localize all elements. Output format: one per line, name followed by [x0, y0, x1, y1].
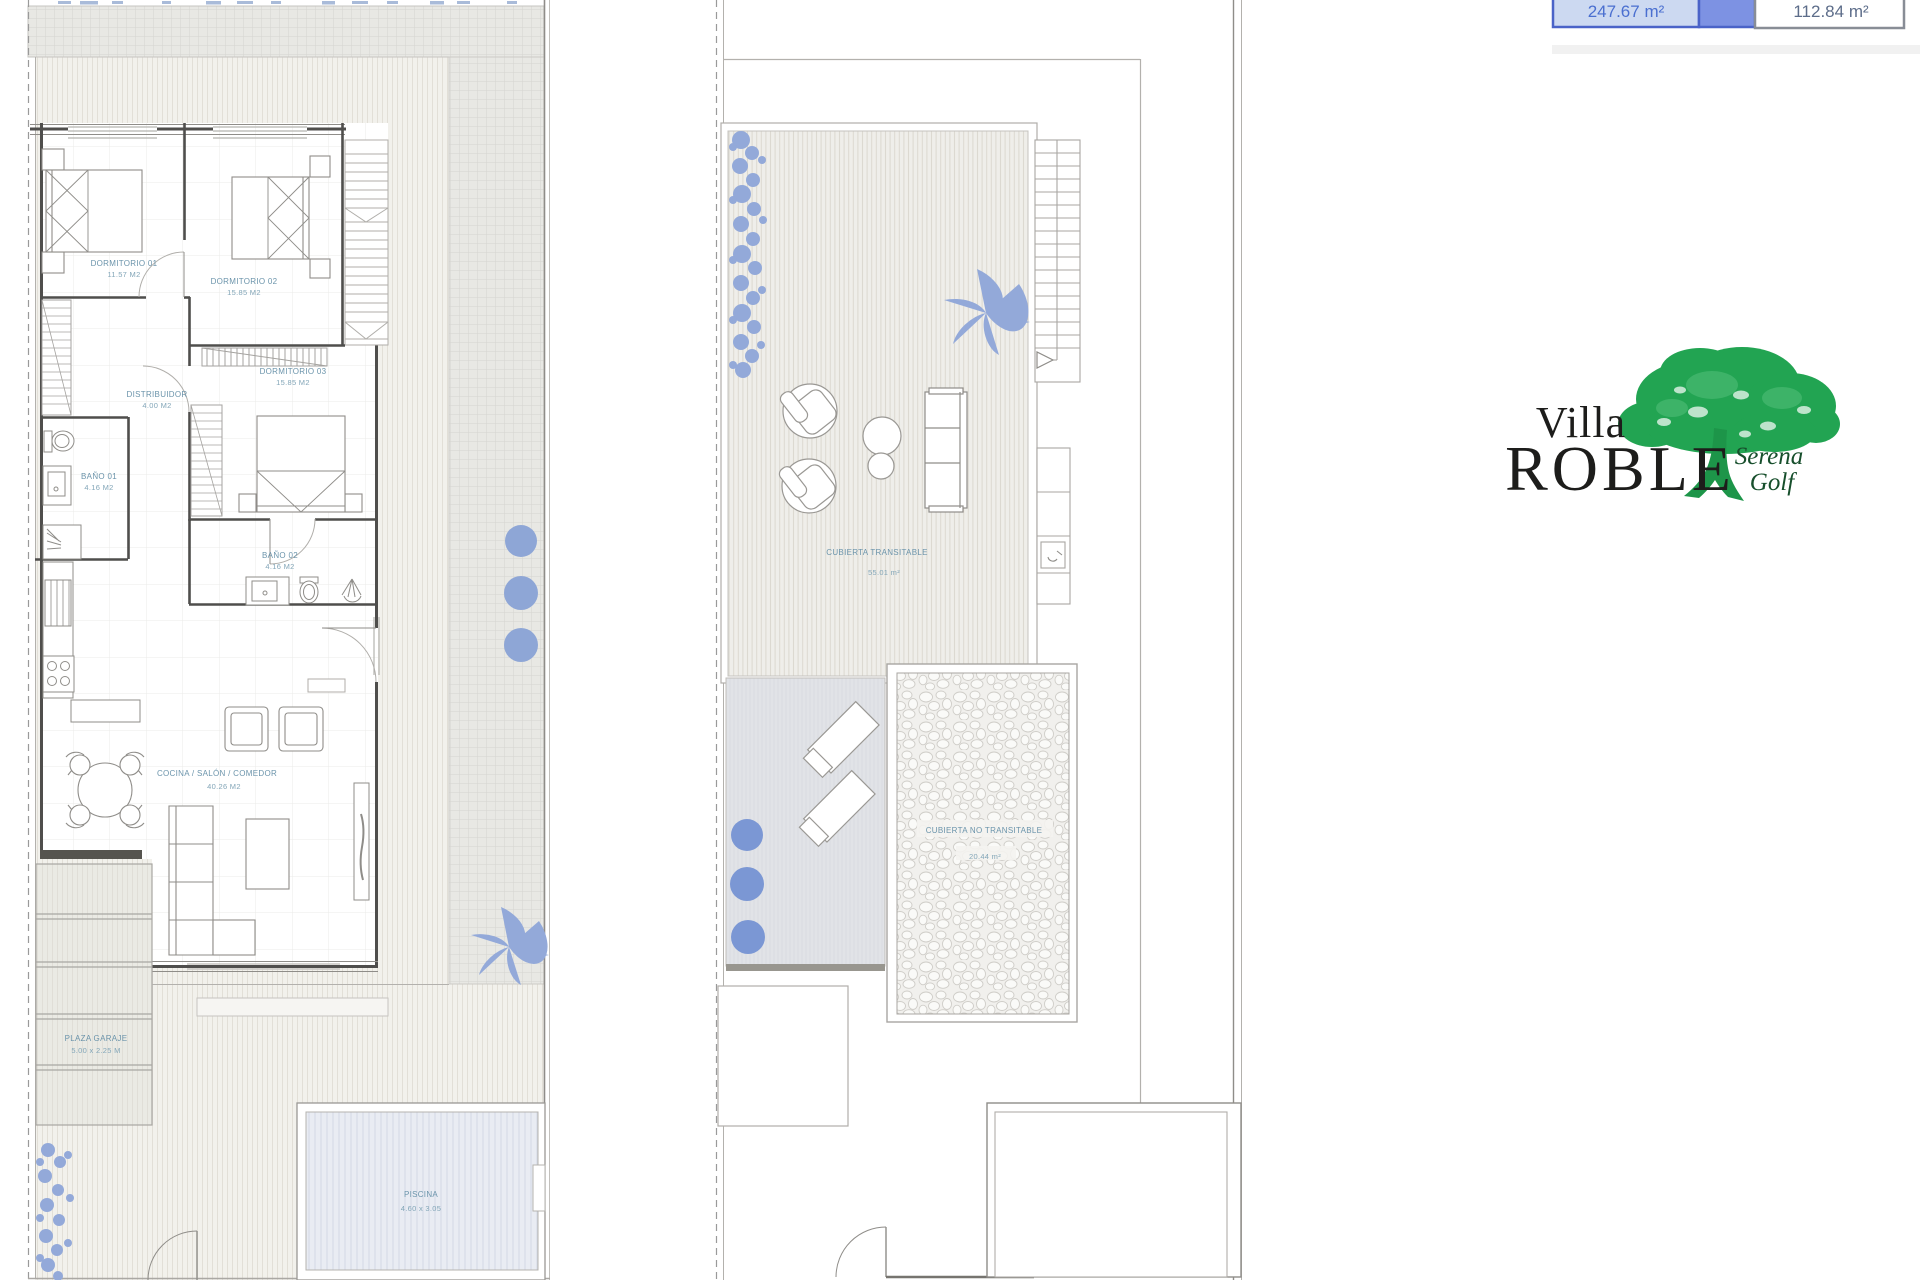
svg-text:4.60 x 3.05: 4.60 x 3.05 [401, 1204, 441, 1213]
svg-text:15.85 M2: 15.85 M2 [276, 378, 310, 387]
svg-text:4.00 M2: 4.00 M2 [142, 401, 171, 410]
svg-text:Serena: Serena [1735, 443, 1804, 470]
svg-text:55.01 m²: 55.01 m² [868, 568, 900, 577]
svg-text:40.26 M2: 40.26 M2 [207, 782, 241, 791]
svg-text:CUBIERTA NO TRANSITABLE: CUBIERTA NO TRANSITABLE [926, 826, 1043, 835]
svg-text:DISTRIBUIDOR: DISTRIBUIDOR [127, 390, 188, 399]
svg-text:PLAZA GARAJE: PLAZA GARAJE [65, 1034, 128, 1043]
svg-text:BAÑO 02: BAÑO 02 [262, 551, 298, 560]
svg-text:247.67 m²: 247.67 m² [1588, 2, 1665, 21]
svg-text:DORMITORIO 01: DORMITORIO 01 [91, 259, 158, 268]
svg-text:11.57 M2: 11.57 M2 [107, 270, 140, 279]
svg-text:112.84 m²: 112.84 m² [1793, 2, 1869, 21]
svg-text:DORMITORIO 02: DORMITORIO 02 [211, 277, 278, 286]
svg-text:4.16 M2: 4.16 M2 [84, 483, 113, 492]
svg-text:ROBLE: ROBLE [1505, 433, 1735, 504]
svg-text:15.85 M2: 15.85 M2 [227, 288, 261, 297]
svg-text:Golf: Golf [1750, 469, 1798, 496]
svg-text:4.16 M2: 4.16 M2 [265, 562, 294, 571]
svg-text:DORMITORIO 03: DORMITORIO 03 [260, 367, 327, 376]
svg-text:20.44 m²: 20.44 m² [969, 852, 1001, 861]
svg-text:BAÑO 01: BAÑO 01 [81, 472, 117, 481]
svg-text:PISCINA: PISCINA [404, 1190, 438, 1199]
svg-text:CUBIERTA TRANSITABLE: CUBIERTA TRANSITABLE [826, 548, 927, 557]
svg-text:COCINA / SALÓN / COMEDOR: COCINA / SALÓN / COMEDOR [157, 769, 277, 778]
svg-text:5.00 x 2.25 M: 5.00 x 2.25 M [71, 1046, 120, 1055]
